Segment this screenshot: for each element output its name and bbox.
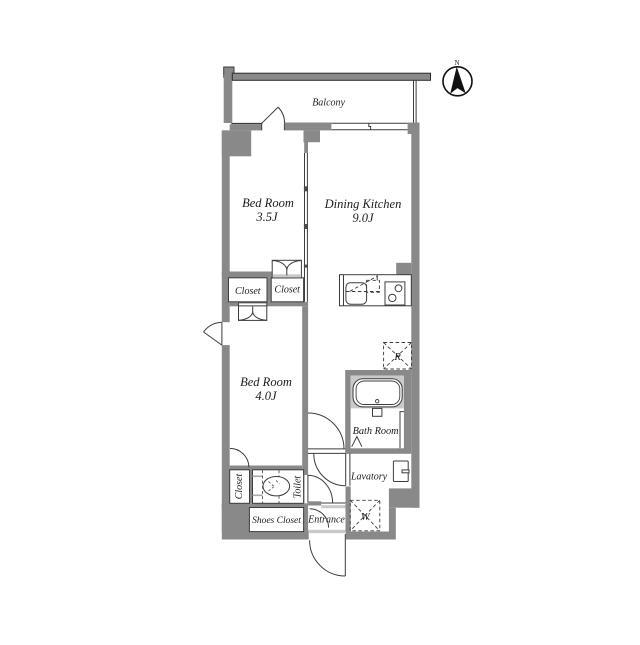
svg-text:R: R <box>393 352 401 363</box>
svg-text:Closet: Closet <box>274 285 300 296</box>
svg-text:Balcony: Balcony <box>312 98 345 109</box>
svg-text:Bed Room: Bed Room <box>242 196 294 210</box>
svg-text:Closet: Closet <box>235 286 261 297</box>
svg-text:W: W <box>361 512 371 523</box>
svg-text:Entrance: Entrance <box>307 515 345 526</box>
svg-text:Bed Room: Bed Room <box>240 375 292 389</box>
svg-text:9.0J: 9.0J <box>352 211 375 225</box>
svg-text:Bath Room: Bath Room <box>353 426 399 437</box>
svg-text:Closet: Closet <box>234 474 245 500</box>
svg-text:N: N <box>454 59 459 67</box>
svg-text:Lavatory: Lavatory <box>350 472 388 483</box>
svg-text:Dining Kitchen: Dining Kitchen <box>324 197 402 211</box>
svg-text:Shoes Closet: Shoes Closet <box>252 516 301 526</box>
svg-text:3.5J: 3.5J <box>255 210 279 224</box>
svg-text:4.0J: 4.0J <box>255 389 278 403</box>
svg-text:Toilet: Toilet <box>292 476 303 499</box>
